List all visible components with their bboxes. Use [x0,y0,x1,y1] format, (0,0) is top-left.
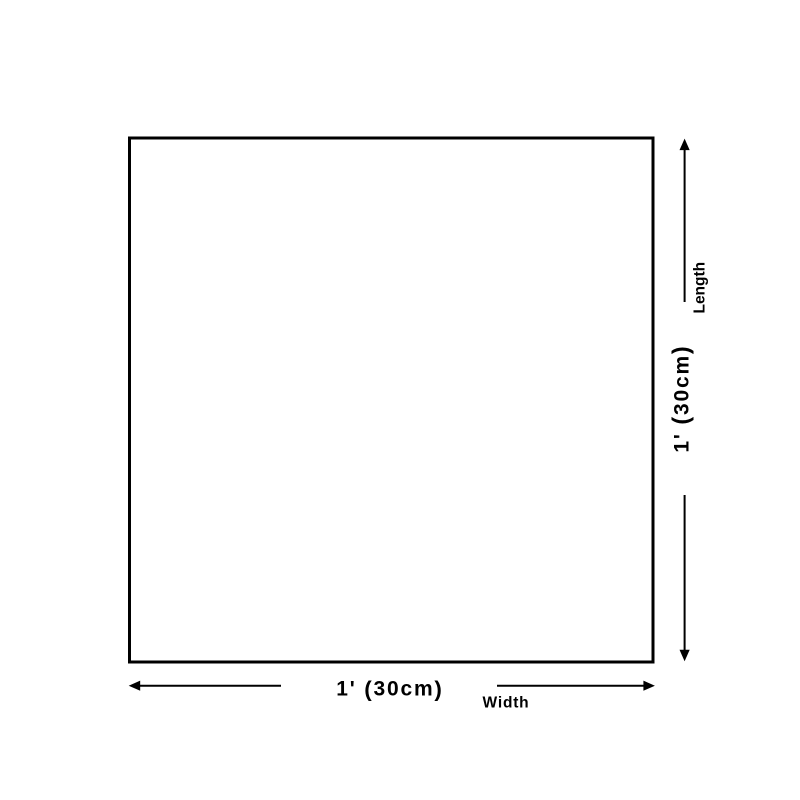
svg-text:Width: Width [483,695,530,712]
svg-text:1' (30cm): 1' (30cm) [336,676,443,701]
svg-text:1' (30cm): 1' (30cm) [668,344,694,452]
svg-text:Length: Length [692,262,709,314]
